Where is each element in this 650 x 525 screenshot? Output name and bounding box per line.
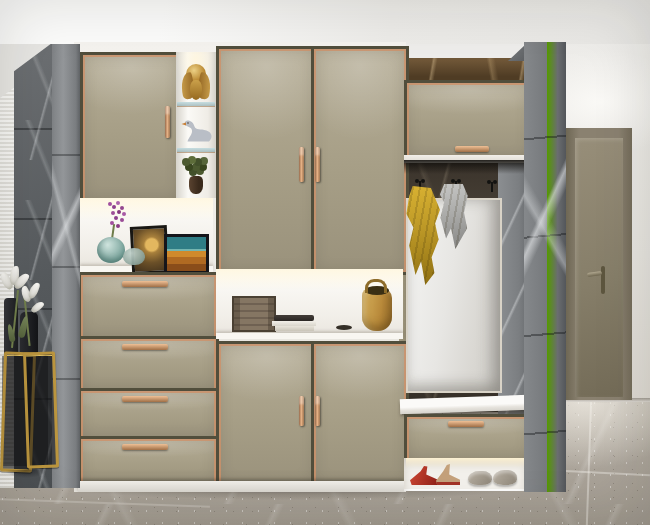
ceiling bbox=[0, 0, 650, 44]
entryway-photo: Modern entry hallway rendering: champagn… bbox=[0, 0, 650, 525]
gray-loafer bbox=[468, 471, 492, 485]
drawer-handle bbox=[122, 344, 168, 350]
bottom-door-right bbox=[311, 341, 409, 487]
cabinet-handle bbox=[455, 146, 489, 152]
glass-shelf bbox=[177, 148, 215, 152]
door-handle bbox=[315, 396, 320, 426]
niche-counter bbox=[216, 333, 403, 339]
drawer-handle bbox=[122, 396, 168, 402]
drawer-handle bbox=[448, 421, 484, 427]
teal-glass-vase bbox=[97, 237, 125, 263]
small-dish bbox=[336, 325, 352, 330]
left-decor-niche bbox=[80, 198, 213, 272]
center-open-niche bbox=[216, 269, 403, 339]
interior-door-frame bbox=[566, 128, 632, 400]
red-high-heels bbox=[410, 466, 438, 485]
tall-door-right bbox=[311, 46, 409, 275]
led-glow bbox=[80, 198, 213, 220]
framed-art-landscape bbox=[164, 234, 209, 274]
ornament-petal bbox=[190, 80, 202, 100]
purple-flower-spray bbox=[108, 202, 112, 206]
swan-figurine bbox=[179, 118, 213, 146]
glass-bowl bbox=[123, 248, 145, 265]
door-handle bbox=[315, 147, 320, 182]
door-handle bbox=[165, 106, 170, 138]
handbag-handle bbox=[365, 279, 387, 293]
door-handle-lever bbox=[587, 271, 602, 277]
interior-door bbox=[575, 138, 623, 397]
door-handle-plate bbox=[601, 266, 605, 294]
console-frame bbox=[23, 351, 59, 468]
wooden-chest bbox=[232, 296, 276, 332]
display-shelf-column bbox=[176, 52, 216, 198]
cabinet-plinth bbox=[78, 481, 404, 492]
plant-foliage bbox=[182, 158, 190, 166]
plant-vase bbox=[189, 176, 203, 194]
gold-lotus-ornament bbox=[181, 64, 211, 102]
alcove-soffit-shadow bbox=[404, 160, 528, 174]
console-floor-shadow bbox=[0, 470, 52, 480]
gray-loafer bbox=[493, 470, 517, 485]
brown-marble-band bbox=[404, 58, 526, 81]
door-handle bbox=[299, 396, 304, 426]
white-lilies bbox=[0, 264, 52, 360]
book bbox=[275, 326, 314, 331]
door-handle bbox=[299, 147, 304, 182]
drawer-handle bbox=[122, 281, 168, 287]
book-stack bbox=[272, 315, 316, 332]
tan-handbag bbox=[362, 288, 392, 331]
glass-shelf bbox=[177, 102, 215, 106]
shoe-cubby bbox=[404, 458, 526, 491]
right-marble-pillar bbox=[524, 42, 566, 492]
coat-hook bbox=[487, 180, 497, 194]
drawer-handle bbox=[122, 444, 168, 450]
